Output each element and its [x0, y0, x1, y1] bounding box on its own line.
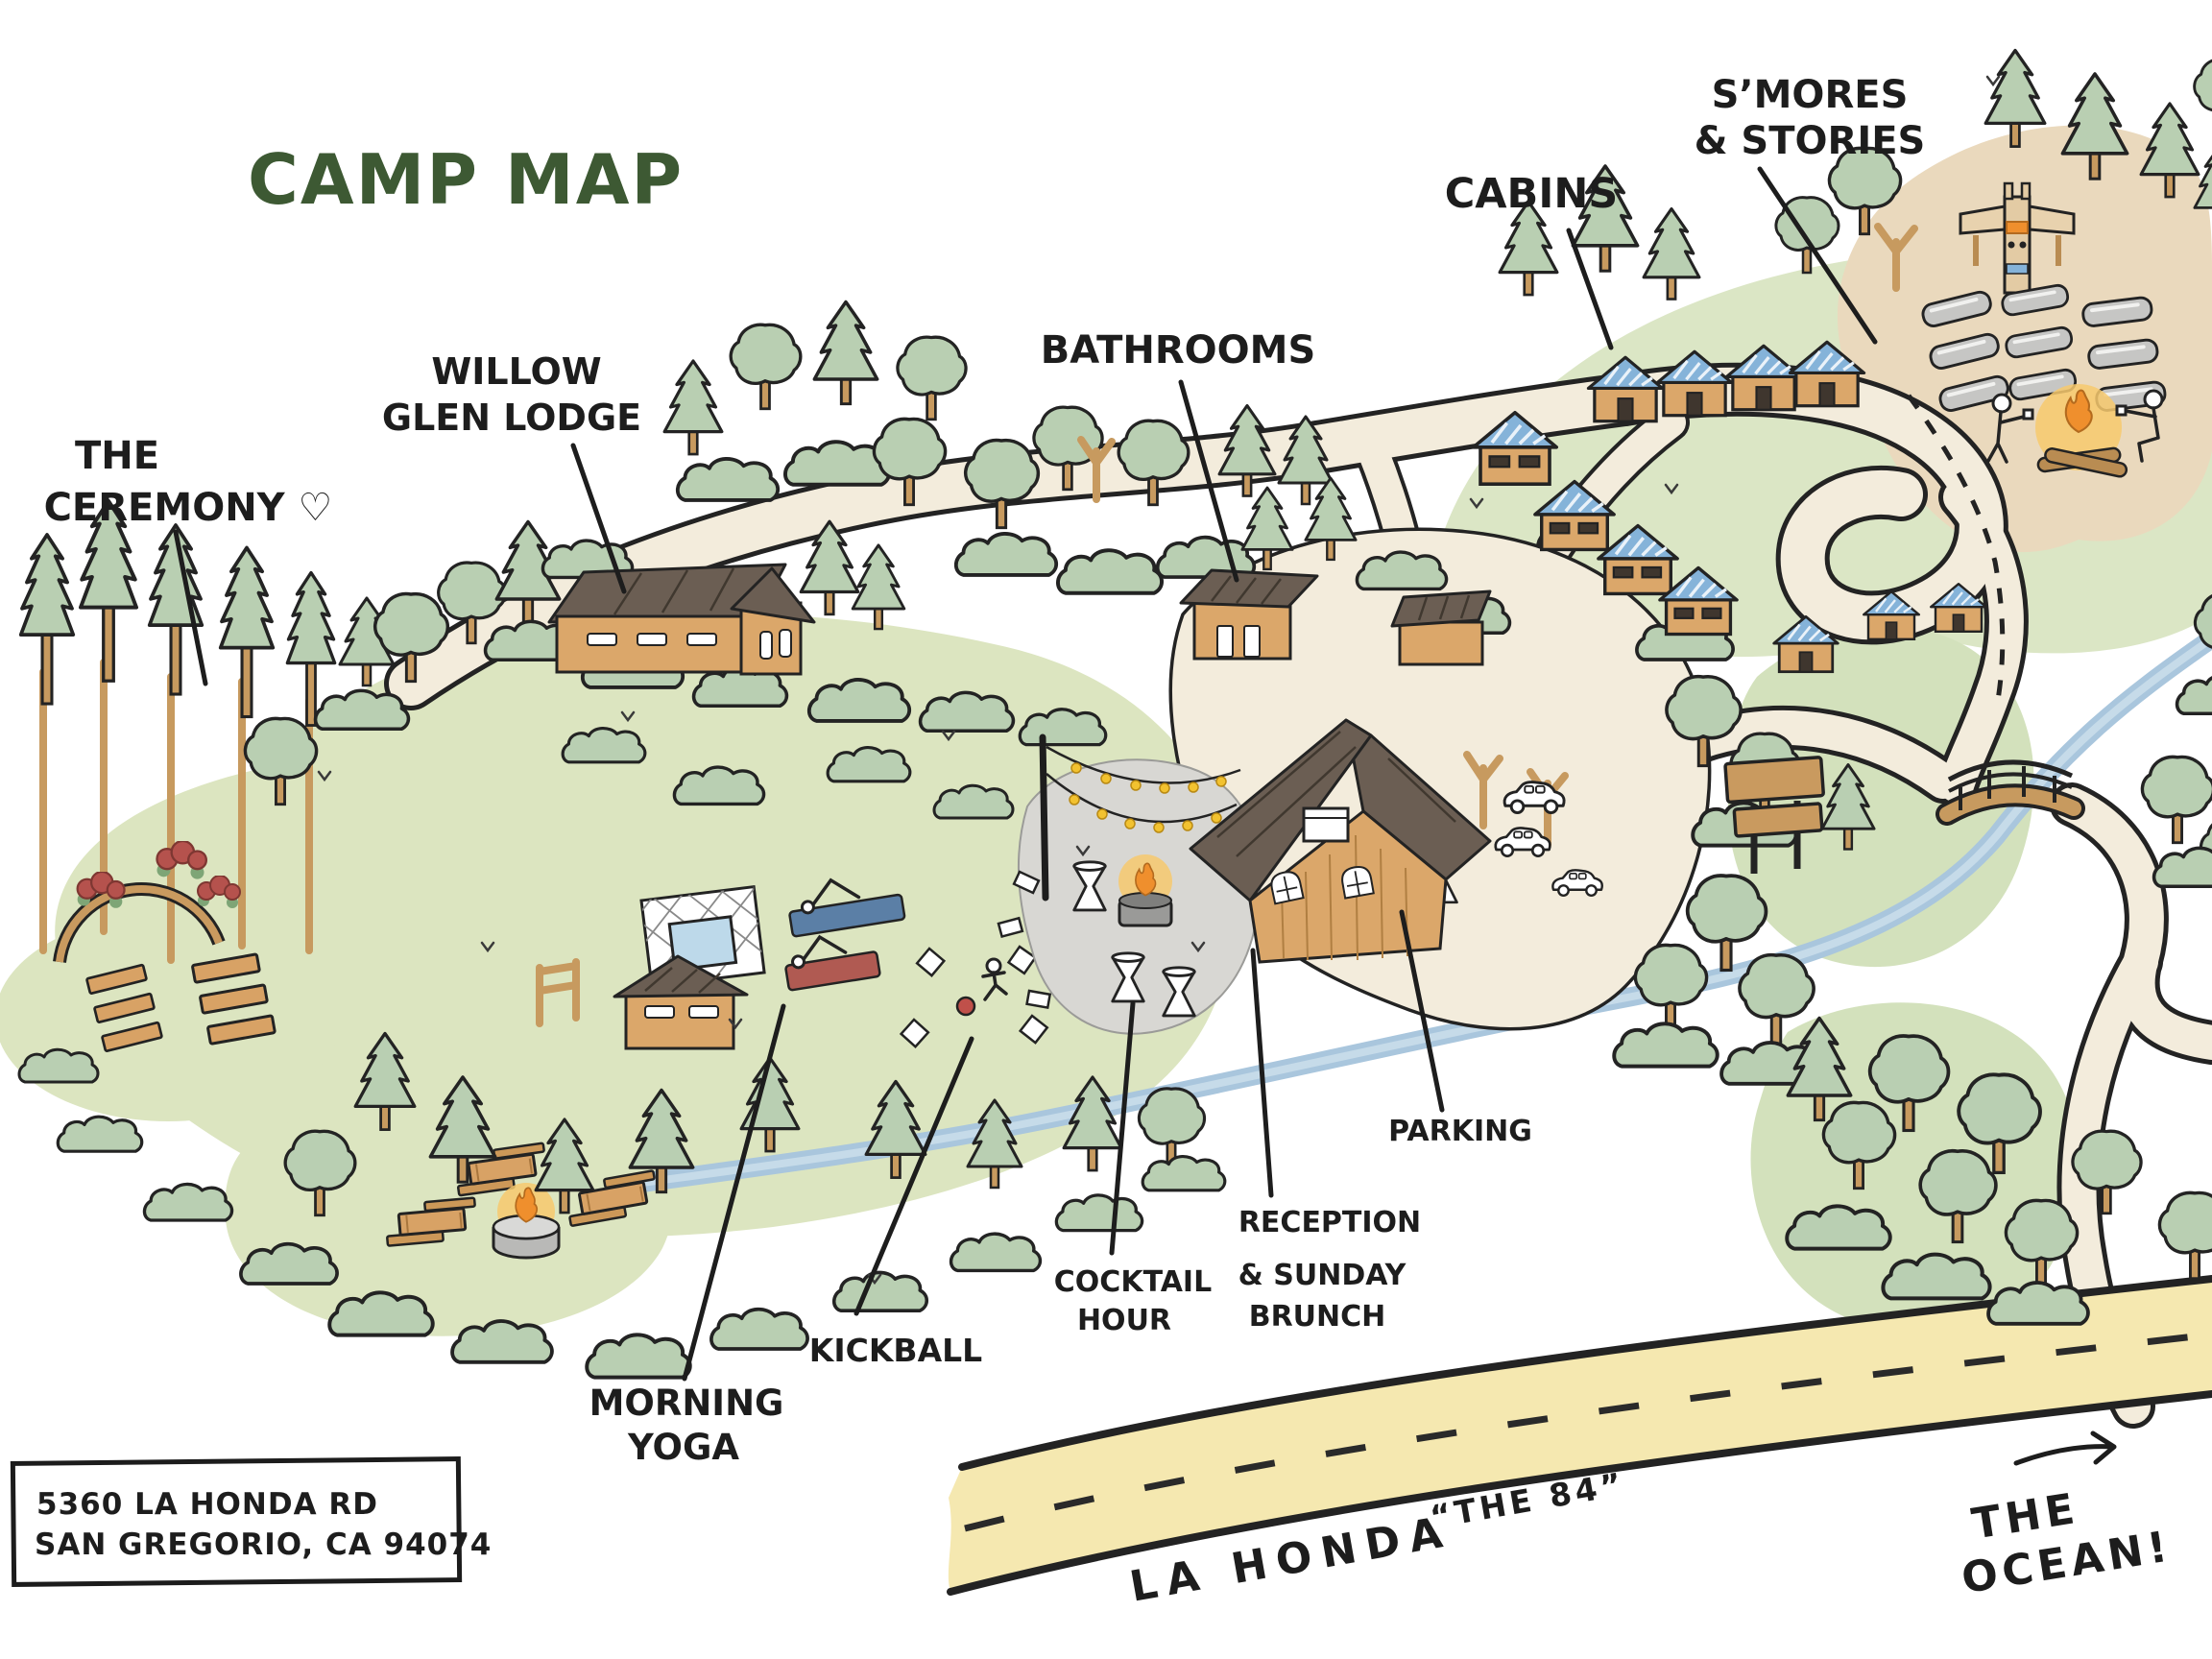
utility-shed: [1392, 591, 1490, 664]
willow-glen-lodge-building: [549, 565, 814, 674]
cocktail-label-line2: HOUR: [1077, 1304, 1171, 1337]
ceremony-label-line2: CEREMONY ♡: [44, 486, 333, 530]
willow-label-line1: WILLOW: [431, 350, 601, 393]
parking-label: PARKING: [1388, 1115, 1532, 1148]
address-box: 5360 LA HONDA RD SAN GREGORIO, CA 94074: [12, 1459, 492, 1585]
cabins-label: CABINS: [1445, 170, 1619, 218]
yoga-label-line1: MORNING: [589, 1382, 784, 1424]
kickball-label: KICKBALL: [809, 1332, 982, 1369]
bathrooms-label: BATHROOMS: [1041, 328, 1316, 373]
ceremony-label-line1: THE: [75, 434, 159, 478]
willow-label-line2: GLEN LODGE: [382, 397, 641, 439]
string-light-pole: [1043, 737, 1046, 898]
reception-label-line1: RECEPTION: [1238, 1206, 1421, 1239]
ocean-direction: THE OCEAN!: [1959, 1433, 2176, 1603]
camp-map-illustration: THE CEREMONY ♡ WILLOW GLEN LODGE BATHROO…: [0, 0, 2212, 1659]
log-benches: [1921, 284, 2166, 413]
smores-label-line1: S’MORES: [1712, 73, 1909, 117]
address-line1: 5360 LA HONDA RD: [36, 1487, 378, 1522]
cocktail-label-line1: COCKTAIL: [1054, 1265, 1212, 1299]
ocean-arrow-icon: [2016, 1433, 2114, 1463]
kickball-ball-icon: [957, 998, 974, 1015]
camp-map-page: THE CEREMONY ♡ WILLOW GLEN LODGE BATHROO…: [0, 0, 2212, 1659]
reception-label-line2: & SUNDAY: [1238, 1259, 1407, 1292]
address-line2: SAN GREGORIO, CA 94074: [35, 1527, 492, 1562]
fire-bowl-icon: [1118, 854, 1172, 926]
yoga-label-line2: YOGA: [627, 1427, 739, 1468]
smores-label-line2: & STORIES: [1695, 119, 1926, 163]
reception-label-line3: BRUNCH: [1249, 1300, 1386, 1334]
page-title: CAMP MAP: [248, 139, 684, 220]
